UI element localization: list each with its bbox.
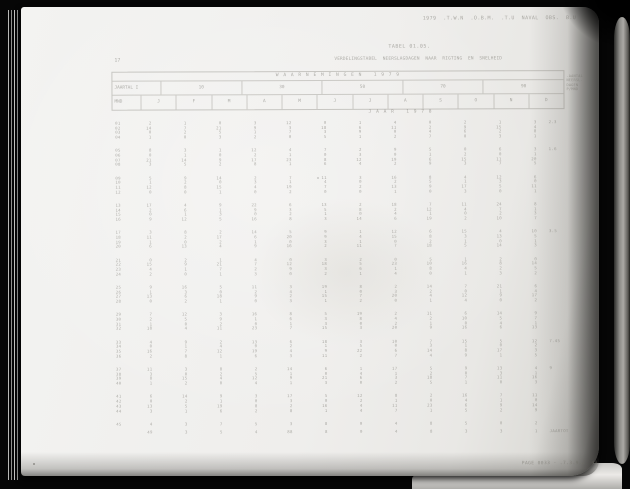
cell-value: 7 — [405, 135, 440, 140]
cell-value: 7 — [265, 327, 300, 332]
cell-value: 2 — [125, 354, 160, 359]
cell-value: 1 — [440, 381, 475, 386]
cell-value: 0 — [265, 272, 300, 277]
cell-value: 0 — [160, 135, 195, 140]
cell-value: 1 — [161, 409, 196, 414]
cell-value: 3 — [161, 422, 196, 427]
cell-value: 9 — [440, 353, 475, 358]
dust-speck — [317, 177, 319, 179]
cell-value: 7 — [370, 353, 405, 358]
cell-value: 14 — [335, 217, 370, 222]
month-header-cell: M — [281, 95, 316, 109]
row-group: 33492136183107155127.4534014021503102351… — [95, 339, 587, 359]
cell-value: 1 — [475, 353, 510, 358]
cell-value: 9 — [405, 326, 440, 331]
table-row: 44316281471529 — [96, 408, 588, 414]
cell-value: 0 — [230, 190, 265, 195]
page-content: 1979 .T.W.N .O.B.M. .T.U NAVAL OBS. B.U … — [20, 6, 600, 477]
page-edge-line — [11, 10, 12, 480]
cell-value: 3 — [265, 354, 300, 359]
row-note — [546, 421, 582, 426]
cell-value: 3 — [265, 299, 300, 304]
cell-value: 11 — [195, 327, 230, 332]
row-group: 0121031201402132.30214721931861129154030… — [95, 120, 587, 140]
cell-value: 1 — [335, 272, 370, 277]
row-note — [545, 243, 581, 248]
cell-value: 4 — [440, 299, 475, 304]
cell-value: 4 — [230, 381, 265, 386]
cell-value: 88 — [266, 431, 301, 436]
cell-value: 1 — [265, 381, 300, 386]
group-header-cell: 30 — [241, 81, 322, 94]
row-note — [545, 298, 581, 303]
group-header-cell: 10 — [160, 81, 241, 94]
cell-value: 0 — [160, 272, 195, 277]
cell-value: 18 — [125, 327, 160, 332]
cell-value: 3 — [126, 409, 161, 414]
page-edge-line — [17, 10, 18, 480]
unit-cell: MND — [112, 96, 140, 110]
table-row: 28021031201402 — [95, 298, 587, 304]
cell-value: 2 — [231, 409, 266, 414]
cell-value: 2 — [370, 162, 405, 167]
row-group: 2971231685192116149302591638421057311020… — [95, 311, 587, 331]
cell-value: 19 — [405, 217, 440, 222]
month-header-cell: A — [387, 95, 422, 109]
cell-value: 14 — [475, 244, 510, 249]
row-label: 32 — [95, 327, 125, 332]
row-group: 2591651131982147216261302410320142713618… — [95, 284, 587, 304]
row-label: 40 — [95, 382, 125, 387]
table-row: 49354888048331JAARTOT — [96, 430, 588, 436]
cell-value: 1 — [195, 299, 230, 304]
cell-value: 1 — [511, 430, 546, 435]
month-header-cell: J — [352, 95, 387, 109]
cell-value: 0 — [475, 298, 510, 303]
cell-value: 1 — [195, 272, 230, 277]
cell-value: 9 — [405, 162, 440, 167]
cell-value: 16 — [230, 217, 265, 222]
cell-value: 3 — [300, 217, 335, 222]
table-row: 08352816429375 — [95, 161, 587, 167]
cell-value: 0 — [265, 135, 300, 140]
cell-value: 0 — [160, 190, 195, 195]
month-header-cell: D — [528, 94, 563, 108]
cell-value: 8 — [160, 354, 195, 359]
row-note: JAARTOT — [546, 430, 582, 435]
table-body: 0121031201402132.30214721931861129154030… — [95, 120, 588, 436]
book-cover-strip — [614, 17, 630, 464]
row-group: 0959142711316841261012031402513011128154… — [95, 175, 587, 195]
cell-value: 13 — [510, 326, 545, 331]
row-note — [545, 161, 581, 166]
cell-value: 5 — [231, 422, 266, 427]
cell-value: 3 — [510, 380, 545, 385]
cell-value: 6 — [125, 245, 160, 250]
cell-value: 0 — [300, 190, 335, 195]
cell-value: 16 — [265, 244, 300, 249]
cell-value: 5 — [510, 353, 545, 358]
cell-value: 18 — [405, 244, 440, 249]
cell-value: 5 — [405, 381, 440, 386]
cell-value: 0 — [370, 299, 405, 304]
cell-value: 6 — [196, 409, 231, 414]
month-header-cell: O — [458, 94, 493, 108]
row-group: 2102140320512022159217121852310168142341… — [95, 257, 587, 277]
cell-value: 5 — [160, 163, 195, 168]
cell-value: 9 — [511, 408, 546, 413]
cell-value: 0 — [475, 380, 510, 385]
table-row: 40120413025103 — [95, 380, 587, 386]
table-row: 12001020010301 — [95, 189, 587, 195]
cell-value: 2 — [265, 190, 300, 195]
cell-value: 11 — [335, 244, 370, 249]
row-group: 1738214591126154103.51811217620941583135… — [95, 229, 587, 249]
cell-value: 12 — [160, 217, 195, 222]
cell-value: 7 — [370, 244, 405, 249]
page-edge-line — [8, 10, 9, 480]
row-label: 36 — [95, 354, 125, 359]
cell-value: 3 — [441, 430, 476, 435]
group-header-cell: 70 — [402, 80, 483, 93]
month-header-cell: M — [211, 95, 246, 109]
cell-value: 0 — [475, 189, 510, 194]
cell-value: 16 — [440, 326, 475, 331]
month-header-cell: F — [176, 95, 211, 109]
cell-value: 2 — [300, 244, 335, 249]
cell-value: 8 — [301, 430, 336, 435]
table-row: 04103205127031 — [95, 134, 587, 140]
cell-value: 2 — [335, 299, 370, 304]
cell-value: 3 — [300, 381, 335, 386]
cell-value: 3 — [230, 272, 265, 277]
cell-value: 2 — [476, 408, 511, 413]
cell-value: 5 — [441, 421, 476, 426]
row-note — [545, 134, 581, 139]
table-group-header-row: JAARTAL I1030507090 — [112, 79, 563, 95]
row-group: 0583112472950631.60601021030120107211491… — [95, 147, 587, 167]
table-title: VERDELINGSTABEL NEERSLAGDAGEN NAAR RIGTI… — [334, 56, 568, 62]
row-note — [545, 353, 581, 358]
table-spanner-header: W A A R N E M I N G E N 1 9 7 9 — [112, 71, 563, 81]
table-row: 1691251683146192107 — [95, 216, 587, 222]
row-group: 3711382146117591349383025104120313981541… — [95, 366, 587, 386]
row-label: 28 — [95, 300, 125, 305]
cell-value: 15 — [300, 326, 335, 331]
cell-value: 7 — [475, 162, 510, 167]
table-row: 45437538048502 — [96, 421, 588, 427]
cell-value: 0 — [336, 430, 371, 435]
row-note — [546, 408, 582, 413]
cell-value: 0 — [476, 421, 511, 426]
scanned-page: 1979 .T.W.N .O.B.M. .T.U NAVAL OBS. B.U … — [21, 7, 599, 476]
cell-value: 23 — [230, 327, 265, 332]
month-header-cell: S — [422, 94, 457, 108]
cell-value: 1 — [195, 190, 230, 195]
cell-value: 0 — [230, 299, 265, 304]
cell-value: 10 — [475, 216, 510, 221]
cell-value: 20 — [370, 326, 405, 331]
cell-value: 5 — [510, 162, 545, 167]
cell-value: 1 — [440, 271, 475, 276]
cell-value: 0 — [440, 134, 475, 139]
cell-value: 1 — [405, 299, 440, 304]
cell-value: 1 — [301, 408, 336, 413]
cell-value: 4 — [371, 430, 406, 435]
cell-value: 2 — [195, 163, 230, 168]
row-group: 1317492261321871124814261935821247115013… — [95, 202, 587, 222]
cell-value: 8 — [265, 217, 300, 222]
table-row: 2061349162117185143 — [95, 243, 587, 249]
row-note — [545, 189, 581, 194]
scanned-book-photo: 1979 .T.W.N .O.B.M. .T.U NAVAL OBS. B.U … — [0, 0, 630, 489]
row-note — [545, 326, 581, 331]
cell-value: 0 — [195, 381, 230, 386]
cell-value: 3 — [125, 163, 160, 168]
cell-value: 0 — [125, 300, 160, 305]
cell-value: 2 — [510, 298, 545, 303]
cell-value: 11 — [300, 354, 335, 359]
table-reference: TABEL 01.05. — [388, 44, 430, 50]
cell-value: 8 — [301, 422, 336, 427]
cell-value: 0 — [335, 381, 370, 386]
cell-value: 1 — [195, 354, 230, 359]
row-label: 45 — [96, 422, 126, 427]
cell-value: 3 — [335, 326, 370, 331]
cell-value: 6 — [230, 354, 265, 359]
cell-value: 6 — [370, 217, 405, 222]
table-row: 362816311274915 — [95, 353, 587, 359]
group-header-cell: 50 — [322, 81, 403, 94]
cell-value: 2 — [370, 381, 405, 386]
cell-value: 9 — [230, 245, 265, 250]
cell-value: 5 — [300, 135, 335, 140]
row-label: 44 — [96, 409, 126, 414]
cell-value: 3 — [440, 162, 475, 167]
table-header-box: W A A R N E M I N G E N 1 9 7 9 JAARTAL … — [111, 70, 564, 111]
row-label — [96, 431, 126, 436]
cell-value: 0 — [405, 189, 440, 194]
table-side-note: -AANTALNEERSL.DAGENP/MND — [566, 74, 583, 92]
month-header-cell: N — [493, 94, 528, 108]
cell-value: 2 — [160, 300, 195, 305]
cell-value: 7 — [510, 216, 545, 221]
cell-value: 3 — [440, 189, 475, 194]
row-label: 16 — [95, 218, 125, 223]
cell-value: 4 — [371, 421, 406, 426]
table-month-header-row: MNDJFMAMJJASOND — [112, 93, 563, 110]
cell-value: 3 — [510, 244, 545, 249]
cell-value: 13 — [160, 245, 195, 250]
cell-value: 4 — [126, 422, 161, 427]
cell-value: 4 — [336, 408, 371, 413]
cell-value: 8 — [266, 409, 301, 414]
page-footer: PAGE 0033 - .7.3.9.3 49 — [420, 461, 598, 467]
row-note — [545, 216, 581, 221]
cell-value: 3 — [475, 134, 510, 139]
cell-value: 2 — [160, 382, 195, 387]
cell-value: 5 — [196, 431, 231, 436]
month-header-cell: J — [140, 95, 175, 109]
row-label: 08 — [95, 163, 125, 168]
dust-speck — [33, 463, 35, 465]
cell-value: 8 — [406, 430, 441, 435]
cell-value: 4 — [370, 271, 405, 276]
cell-value: 1 — [510, 134, 545, 139]
cell-value: 2 — [440, 217, 475, 222]
table-row: 24201302140132 — [95, 271, 587, 277]
report-header-line: 1979 .T.W.N .O.B.M. .T.U NAVAL OBS. B.U — [350, 15, 576, 22]
cell-value: 2 — [335, 354, 370, 359]
group-header-cell: 90 — [483, 80, 564, 93]
cell-value: 2 — [510, 271, 545, 276]
cell-value: 1 — [265, 162, 300, 167]
cell-value: 0 — [336, 422, 371, 427]
cell-value: 8 — [230, 163, 265, 168]
page-edge-line — [14, 10, 15, 480]
cell-value: 1 — [300, 299, 335, 304]
cell-value: 1 — [370, 189, 405, 194]
cell-value: 4 — [231, 431, 266, 436]
row-group: 4161493175128216711420210302104104313519… — [96, 393, 588, 413]
cell-value: 4 — [405, 353, 440, 358]
cell-value: 9 — [125, 218, 160, 223]
table-subtitle-year: J A A R 1 9 7 8 — [301, 109, 501, 115]
cell-value: 2 — [230, 135, 265, 140]
cell-value: 6 — [475, 326, 510, 331]
cell-value: 1 — [406, 408, 441, 413]
cell-value: 3 — [195, 135, 230, 140]
row-label: 24 — [95, 272, 125, 277]
cell-value: 3 — [161, 431, 196, 436]
station-number: 17 — [114, 58, 120, 64]
cell-value: 2 — [300, 272, 335, 277]
cell-value: 7 — [196, 422, 231, 427]
cell-value: 0 — [125, 190, 160, 195]
cell-value: 4 — [195, 245, 230, 250]
cell-value: 3 — [475, 271, 510, 276]
cell-value: 1 — [510, 189, 545, 194]
cell-value: 0 — [335, 190, 370, 195]
row-note — [545, 380, 581, 385]
year-label-cell: JAARTAL I — [112, 82, 160, 95]
cell-value: 3 — [266, 422, 301, 427]
cell-value: 2 — [511, 421, 546, 426]
cell-value: 5 — [440, 244, 475, 249]
table-row: 321841123715320916613 — [95, 326, 587, 332]
cell-value: 1 — [125, 382, 160, 387]
cell-value: 4 — [335, 162, 370, 167]
row-label: 04 — [95, 136, 125, 141]
row-note — [545, 271, 581, 276]
cell-value: 5 — [441, 408, 476, 413]
side-note-line: P/MND — [566, 87, 583, 91]
cell-value: 0 — [405, 271, 440, 276]
cell-value: 5 — [195, 217, 230, 222]
cell-value: 2 — [125, 272, 160, 277]
cell-value: 3 — [476, 430, 511, 435]
cell-value: 6 — [300, 162, 335, 167]
cell-value: 4 — [160, 327, 195, 332]
row-label: 12 — [95, 190, 125, 195]
row-label: 20 — [95, 245, 125, 250]
cell-value: 1 — [335, 135, 370, 140]
month-header-cell: A — [246, 95, 281, 109]
cell-value: 49 — [126, 431, 161, 436]
month-header-cell: J — [317, 95, 352, 109]
cell-value: 1 — [125, 136, 160, 141]
cell-value: 2 — [370, 135, 405, 140]
cell-value: 7 — [371, 408, 406, 413]
cell-value: 8 — [406, 421, 441, 426]
